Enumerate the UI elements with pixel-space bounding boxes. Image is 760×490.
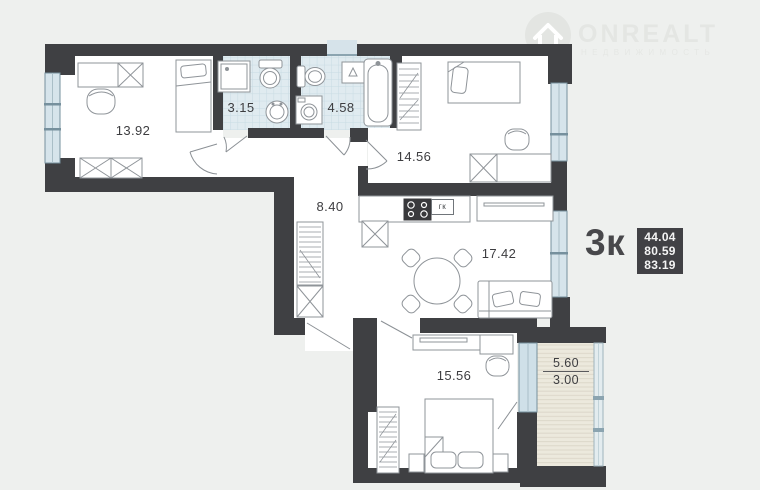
apartment-type-label: 3к — [585, 222, 625, 264]
room-floors — [60, 56, 595, 468]
wardrobe-icon — [78, 63, 118, 87]
dining-table-icon — [414, 258, 460, 304]
balcony-area-label: 5.60 3.00 — [543, 356, 589, 387]
room-area-label-bedroom2: 14.56 — [384, 149, 444, 164]
wall-balcony-bottom — [520, 466, 606, 487]
wall-topright-corner — [548, 44, 572, 84]
pillow-icon — [180, 64, 206, 79]
chair-icon — [505, 129, 529, 150]
floorplan-page: ONREALT НЕДВИЖИМОСТЬ — [0, 0, 760, 490]
desk-return — [480, 335, 513, 354]
room-area-label-bedroom1: 13.92 — [103, 123, 163, 138]
balcony-area-full: 5.60 — [543, 356, 589, 372]
armchair-icon — [87, 89, 115, 114]
wall-bedroom2-west-a — [358, 128, 368, 140]
room-area-label-kitchen: 17.42 — [469, 246, 529, 261]
wall-bath-south — [248, 128, 324, 138]
room-area-label-bath1: 3.15 — [211, 100, 271, 115]
stove-icon — [404, 199, 431, 220]
room-area-label-bedroom3: 15.56 — [424, 368, 484, 383]
vent-shaft — [327, 40, 357, 56]
bedroom1-door-opening — [213, 130, 223, 177]
wall-balcony-corner — [517, 318, 537, 343]
desk-icon — [470, 154, 551, 182]
total-area-value: 83.19 — [644, 258, 676, 272]
wall-hall-corner — [274, 318, 305, 335]
pillow-icon — [458, 452, 483, 468]
glazing-joint — [593, 428, 604, 432]
wardrobe-rail-icon — [297, 222, 323, 285]
nightstand-icon — [493, 454, 508, 472]
balcony-area-reduced: 3.00 — [543, 372, 589, 387]
wall-leftwing-bottom — [45, 177, 290, 192]
living-area-value: 44.04 — [644, 230, 676, 244]
glazing-joint — [593, 396, 604, 400]
wall-topleft-corner — [45, 44, 75, 75]
toilet-icon — [259, 60, 282, 68]
water-heater-icon — [342, 62, 364, 83]
wall-kitchen-south — [420, 318, 527, 333]
apartment-areas-box: 44.04 80.59 83.19 — [637, 228, 683, 274]
wall-hall-left — [274, 177, 294, 335]
shower-icon — [218, 61, 250, 92]
room-area-label-hall: 8.40 — [300, 199, 360, 214]
wall-balcony-door-pillar — [517, 412, 537, 468]
pillow-icon — [519, 291, 541, 307]
nightstand-icon — [409, 454, 424, 472]
chair-icon — [486, 356, 509, 376]
area-value: 80.59 — [644, 244, 676, 258]
pillow-icon — [431, 452, 456, 468]
wall-balcony-top — [537, 327, 606, 343]
kitchen-counter — [477, 196, 553, 221]
gas-boiler-box: гк — [431, 199, 454, 215]
toilet-icon — [297, 66, 305, 87]
wall-kitchen-north — [358, 183, 553, 196]
pillow-icon — [450, 66, 468, 94]
room-area-label-bath2: 4.58 — [311, 100, 371, 115]
wall-bedroom3-pillar — [353, 318, 377, 412]
wall-top — [55, 44, 572, 56]
